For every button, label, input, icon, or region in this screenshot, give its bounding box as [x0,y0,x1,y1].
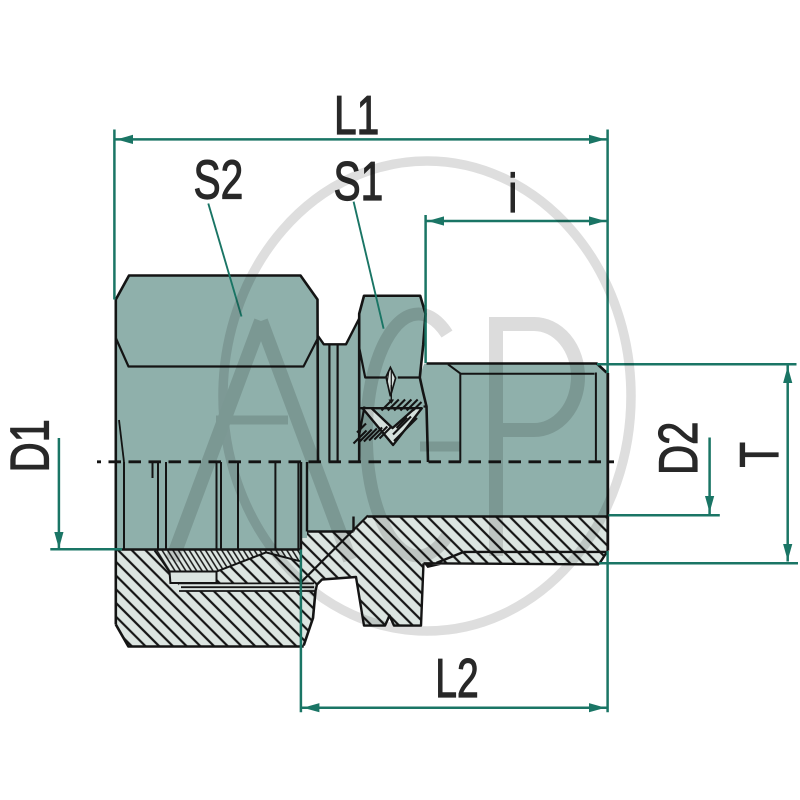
svg-text:L1: L1 [334,85,379,146]
svg-text:i: i [508,163,517,224]
svg-text:D2: D2 [649,422,710,475]
svg-text:S2: S2 [194,150,244,211]
svg-text:D1: D1 [0,419,61,472]
svg-text:L2: L2 [435,649,478,710]
svg-text:T: T [730,442,791,468]
